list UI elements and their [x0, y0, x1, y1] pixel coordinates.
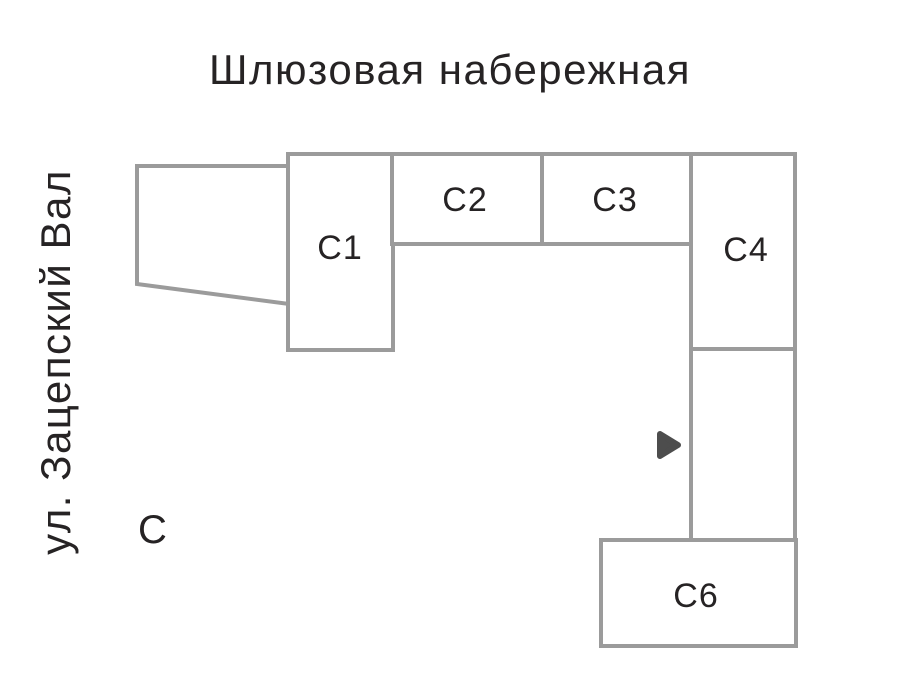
- triangle-right-icon: [660, 434, 678, 456]
- building-c2[interactable]: С2: [392, 154, 542, 244]
- building-c5-label: С5: [722, 425, 767, 463]
- building-c2-label: С2: [442, 181, 487, 219]
- building-c4-label: С4: [723, 231, 768, 269]
- building-c3[interactable]: С3: [542, 154, 691, 244]
- street-left-label: ул. Зацепский Вал: [32, 169, 79, 555]
- building-c6-label: С6: [673, 577, 718, 615]
- building-c1[interactable]: С1: [288, 154, 393, 350]
- site-plan-page: Шлюзовая набережная ул. Зацепский Вал С1…: [0, 0, 900, 700]
- building-unlabeled-outline: [137, 166, 289, 304]
- building-c5[interactable]: С5: [691, 349, 795, 540]
- building-c1-label: С1: [317, 229, 362, 267]
- compass-north-label: С: [138, 508, 167, 552]
- building-c6[interactable]: С6: [601, 540, 796, 646]
- building-c3-label: С3: [592, 181, 637, 219]
- street-top-label: Шлюзовая набережная: [209, 46, 691, 93]
- site-plan-canvas: Шлюзовая набережная ул. Зацепский Вал С1…: [0, 0, 900, 700]
- building-c4[interactable]: С4: [691, 154, 795, 349]
